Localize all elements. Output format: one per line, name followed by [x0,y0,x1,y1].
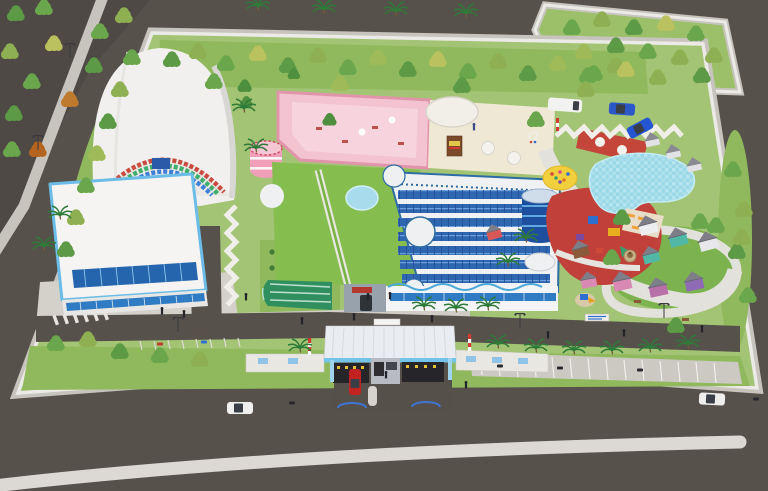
roof-cutout-circle [405,217,435,247]
motorbike [157,343,163,346]
aerial-render [0,0,768,491]
person [301,317,304,324]
round-pavilion-south [525,253,555,271]
person [385,371,388,378]
red-car [349,369,361,395]
main-building [250,92,560,312]
motorbike [201,341,207,344]
person [389,292,392,299]
person [161,307,164,314]
motorbike [557,367,563,370]
gate-roof-sign [374,319,400,325]
white-car [227,402,253,414]
campus [18,33,757,410]
parasol [482,142,495,155]
fountain [624,250,636,262]
striped-pole [468,334,471,351]
splash-pad-yellow [543,166,577,190]
curb-island [368,386,377,406]
gate-post [330,360,334,382]
arch-window [152,158,170,169]
person [183,310,186,317]
round-pavilion [426,97,478,127]
person [465,381,468,388]
person [701,325,704,332]
entrance-sign [352,287,372,293]
motorbike [497,365,503,368]
facade-window-band [390,293,556,301]
motorbike [753,398,759,401]
person [353,313,356,320]
gate-post [448,358,452,380]
striped-pole [556,118,559,131]
motorbike [289,402,295,405]
person [245,293,248,300]
roof-cutout-circle [383,165,405,187]
person [623,329,626,336]
parasol [508,152,521,165]
person [473,123,476,130]
striped-pole [308,338,311,355]
entrance-door [360,295,372,311]
bench [634,300,641,303]
bench [682,318,689,321]
gate-wall-west [246,354,324,372]
motorbike [637,369,643,372]
booth-window [386,362,397,370]
kiosk [447,136,462,156]
white-car [699,392,726,405]
booth-window [374,362,384,376]
pink-terrace-floor [292,102,418,158]
person [431,315,434,322]
blue-car [609,102,636,116]
white-van [548,97,583,112]
parasol [595,137,605,147]
screenshot-root [0,0,768,491]
person [547,331,550,338]
roof-cutout-circle [260,184,284,208]
park-sign [585,314,609,321]
roof-pond [346,186,378,210]
person [367,293,370,300]
